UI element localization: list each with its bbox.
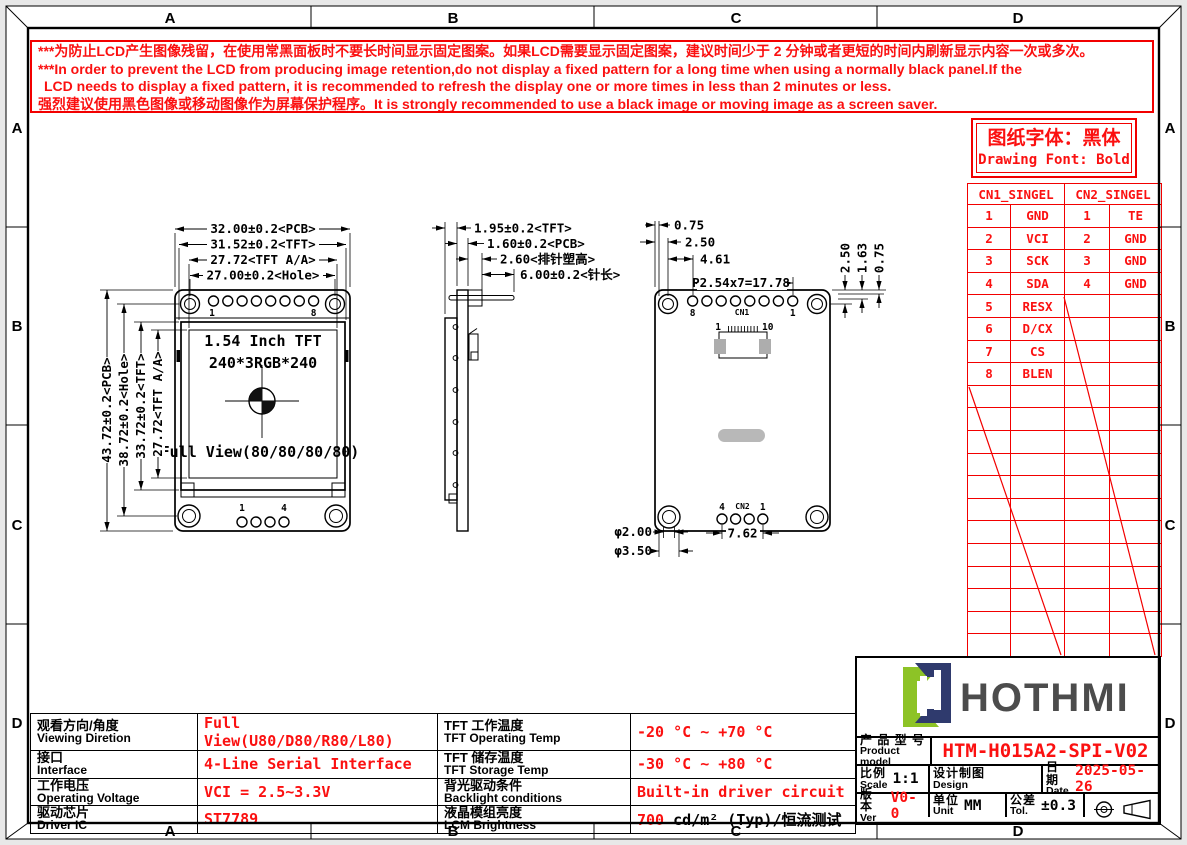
pin-name: D/CX bbox=[1011, 317, 1065, 340]
dim-hole-outer-dia: φ3.50 bbox=[614, 543, 652, 558]
unit-value: MM bbox=[964, 798, 981, 814]
spec-label-en: TFT Operating Temp bbox=[444, 732, 630, 745]
front-view: 1 8 1 4 1.54 Inch TFT 240*3RGB*240 Full … bbox=[161, 290, 360, 531]
pin-row: 3 SCK 3 GND bbox=[968, 250, 1162, 273]
spec-row: 接口 Interface 4-Line Serial Interface TFT… bbox=[31, 751, 856, 779]
dim-active-area-height: 27.72<TFT A/A> bbox=[150, 351, 165, 456]
header-pin-side bbox=[449, 296, 514, 301]
pin-number-label: 1 bbox=[209, 308, 215, 319]
cn2-pin-holes-back bbox=[717, 514, 768, 524]
pin-no: 7 bbox=[968, 340, 1011, 363]
dim-hole-inner-dia: φ2.00 bbox=[614, 524, 652, 539]
spec-label-en: LCM Brightness bbox=[444, 819, 630, 832]
margin-bottom bbox=[0, 839, 1187, 845]
font-note-cn: 图纸字体：黑体 bbox=[987, 127, 1120, 151]
ver-label-en: Ver bbox=[860, 813, 886, 824]
pin-number-label: 1 bbox=[760, 502, 766, 513]
zone-label-right: A bbox=[1165, 120, 1176, 137]
dim-right-2: 1.63 bbox=[855, 243, 870, 273]
dim-cn2-pitch: 7.62 bbox=[727, 526, 757, 541]
pin-name: VCI bbox=[1011, 227, 1065, 250]
bezel-tab bbox=[177, 350, 181, 362]
spec-label-en: Interface bbox=[37, 764, 197, 777]
mount-hole bbox=[178, 505, 200, 527]
spec-label-en: Driver IC bbox=[37, 819, 197, 832]
engineering-drawing-page: ***为防止LCD产生图像残留，在使用常黑面板时不要长时间显示固定图案。如果LC… bbox=[0, 0, 1187, 845]
product-model-row: 产 品 型 号 Product model HTM-H015A2-SPI-V02 bbox=[857, 738, 1159, 766]
zone-label-top: D bbox=[1013, 10, 1024, 27]
spec-label-cell: 工作电压 Operating Voltage bbox=[31, 778, 198, 806]
fpc-pad bbox=[714, 339, 726, 354]
date-value: 2025-05-26 bbox=[1075, 763, 1156, 795]
spec-label-cell: TFT 储存温度 TFT Storage Temp bbox=[438, 751, 631, 779]
font-note-en: Drawing Font: Bold bbox=[978, 151, 1130, 169]
dim-hole-offset: 2.50 bbox=[685, 235, 715, 250]
spec-value: Full View(U80/D80/R80/L80) bbox=[198, 714, 438, 751]
zone-label-left: A bbox=[12, 120, 23, 137]
pin-row-empty bbox=[968, 589, 1162, 612]
spec-label-en: TFT Storage Temp bbox=[444, 764, 630, 777]
pin-row: 1 GND 1 TE bbox=[968, 205, 1162, 228]
dim-pin-pitch: P2.54x7=17.78 bbox=[692, 275, 790, 290]
front-view-dimensions-top: 32.00±0.2<PCB> 31.52±0.2<TFT> 27.72<TFT … bbox=[175, 221, 350, 328]
pin-name: GND bbox=[1110, 272, 1162, 295]
spec-label-en: Backlight conditions bbox=[444, 792, 630, 805]
zone-label-right: B bbox=[1165, 318, 1176, 335]
margin-right bbox=[1181, 6, 1187, 839]
dim-tft-thickness: 1.95±0.2<TFT> bbox=[474, 221, 572, 236]
pin-row-empty bbox=[968, 566, 1162, 589]
back-view-dimensions: 0.75 2.50 4.61 P2.54x7=17.78 2.50 1.63 bbox=[614, 218, 886, 559]
ver-unit-tol-row: 版本 Ver V0-0 单位 Unit MM 公差 Tol. ±0.3 bbox=[857, 794, 1159, 817]
panel-size-label: 1.54 Inch TFT bbox=[204, 332, 321, 350]
pin-number-label: 1 bbox=[239, 503, 245, 514]
pin-no: 4 bbox=[968, 272, 1011, 295]
pin-no: 2 bbox=[1065, 227, 1110, 250]
spec-value: 700 cd/m² (Typ)/恒流测试 bbox=[631, 806, 856, 834]
warning-line: 强烈建议使用黑色图像或移动图像作为屏幕保护程序。It is strongly r… bbox=[38, 96, 1146, 114]
pin-name: SDA bbox=[1011, 272, 1065, 295]
pin-no: 4 bbox=[1065, 272, 1110, 295]
front-view-dimensions-left: 43.72±0.2<PCB> 38.72±0.2<Hole> 33.72±0.2… bbox=[99, 290, 187, 531]
warning-line: ***为防止LCD产生图像残留，在使用常黑面板时不要长时间显示固定图案。如果LC… bbox=[38, 43, 1146, 61]
pin-name: GND bbox=[1011, 205, 1065, 228]
spec-label-cell: 液晶模组亮度 LCM Brightness bbox=[438, 806, 631, 834]
fpc-connector-side bbox=[469, 334, 478, 360]
back-view: 8 CN1 1 1 10 4 CN2 bbox=[655, 290, 830, 531]
dim-pcb-thickness: 1.60±0.2<PCB> bbox=[487, 236, 585, 251]
zone-label-top: C bbox=[731, 10, 742, 27]
cn2-pin-holes-front bbox=[237, 517, 289, 527]
date-label-cn: 日期 bbox=[1046, 761, 1070, 786]
pin-no: 3 bbox=[1065, 250, 1110, 273]
pin-row-empty bbox=[968, 611, 1162, 634]
pin-no: 5 bbox=[968, 295, 1011, 318]
pin-name: GND bbox=[1110, 250, 1162, 273]
cn2-connector-label: CN2 bbox=[735, 502, 750, 511]
drawing-font-note: 图纸字体：黑体 Drawing Font: Bold bbox=[971, 118, 1137, 178]
pin-name: RESX bbox=[1011, 295, 1065, 318]
unit-cell: 单位 Unit MM bbox=[930, 794, 1007, 817]
zone-label-top: B bbox=[448, 10, 459, 27]
design-label-en: Design bbox=[933, 780, 985, 791]
zone-label-right: D bbox=[1165, 715, 1176, 732]
margin-left bbox=[0, 6, 6, 839]
spec-label-cell: 背光驱动条件 Backlight conditions bbox=[438, 778, 631, 806]
pin-row: 2 VCI 2 GND bbox=[968, 227, 1162, 250]
zone-label-right: C bbox=[1165, 517, 1176, 534]
fpc-pad bbox=[759, 339, 771, 354]
tolerance-cell: 公差 Tol. ±0.3 bbox=[1007, 794, 1085, 817]
side-view bbox=[445, 290, 514, 531]
pin-number-label: 1 bbox=[790, 308, 796, 319]
product-model-label-cell: 产 品 型 号 Product model bbox=[857, 738, 932, 764]
pin-no: 1 bbox=[968, 205, 1011, 228]
zone-label-top: A bbox=[165, 10, 176, 27]
image-retention-warning: ***为防止LCD产生图像残留，在使用常黑面板时不要长时间显示固定图案。如果LC… bbox=[30, 40, 1154, 113]
pin-table-header-row: CN1_SINGEL CN2_SINGEL bbox=[968, 184, 1162, 205]
spec-value-red: 700 bbox=[637, 811, 664, 829]
product-label-en: Product model bbox=[860, 746, 927, 768]
pin-row-empty bbox=[968, 408, 1162, 431]
scale-value: 1:1 bbox=[892, 771, 918, 787]
pin-row-empty bbox=[968, 521, 1162, 544]
spec-label-en: Operating Voltage bbox=[37, 792, 197, 805]
spec-label-cn: 工作电压 bbox=[37, 779, 197, 792]
dim-header-plastic-height: 2.60<排针塑高> bbox=[500, 252, 595, 267]
date-cell: 日期 Date 2025-05-26 bbox=[1043, 766, 1159, 792]
pin-row-empty bbox=[968, 498, 1162, 521]
spec-label-cell: 观看方向/角度 Viewing Diretion bbox=[31, 714, 198, 751]
spec-row: 观看方向/角度 Viewing Diretion Full View(U80/D… bbox=[31, 714, 856, 751]
pin-row: 5 RESX bbox=[968, 295, 1162, 318]
warning-line: ***In order to prevent the LCD from prod… bbox=[38, 61, 1146, 79]
spec-label-cn: 背光驱动条件 bbox=[444, 779, 630, 792]
zone-label-left: C bbox=[12, 517, 23, 534]
mount-hole bbox=[326, 295, 345, 314]
spec-label-cell: 接口 Interface bbox=[31, 751, 198, 779]
zone-label-left: B bbox=[12, 318, 23, 335]
mount-hole bbox=[806, 506, 828, 528]
cn1-connector-label: CN1 bbox=[735, 308, 750, 317]
dim-hole-width: 27.00±0.2<Hole> bbox=[207, 268, 320, 283]
tol-value: ±0.3 bbox=[1041, 798, 1076, 814]
pin-row-empty bbox=[968, 634, 1162, 657]
cn1-pin-holes-front bbox=[209, 296, 319, 306]
pin-row: 7 CS bbox=[968, 340, 1162, 363]
pin-row: 8 BLEN bbox=[968, 363, 1162, 386]
pin-no: 6 bbox=[968, 317, 1011, 340]
spec-label-en: Viewing Diretion bbox=[37, 732, 197, 745]
fpc-pin-label: 10 bbox=[762, 322, 774, 333]
zone-label-left: D bbox=[12, 715, 23, 732]
spec-table: 观看方向/角度 Viewing Diretion Full View(U80/D… bbox=[30, 713, 856, 834]
pin-row: 4 SDA 4 GND bbox=[968, 272, 1162, 295]
pin-row-empty bbox=[968, 543, 1162, 566]
mount-hole bbox=[181, 295, 200, 314]
cn1-pin-holes-back bbox=[688, 296, 798, 306]
spec-value: VCI = 2.5~3.3V bbox=[198, 778, 438, 806]
pin-row-empty bbox=[968, 453, 1162, 476]
dim-tft-height: 33.72±0.2<TFT> bbox=[133, 353, 148, 458]
logo-cell bbox=[857, 658, 1159, 738]
spec-value: ST7789 bbox=[198, 806, 438, 834]
pin-no: 3 bbox=[968, 250, 1011, 273]
mount-hole bbox=[658, 506, 680, 528]
design-cell: 设计制图 Design bbox=[930, 766, 1043, 792]
pin-name: TE bbox=[1110, 205, 1162, 228]
pin-name: GND bbox=[1110, 227, 1162, 250]
connector-pin-table: CN1_SINGEL CN2_SINGEL 1 GND 1 TE 2 VCI 2… bbox=[967, 183, 1162, 657]
pin-number-label: 4 bbox=[719, 502, 725, 513]
fpc-connector bbox=[714, 326, 771, 358]
spec-row: 驱动芯片 Driver IC ST7789 液晶模组亮度 LCM Brightn… bbox=[31, 806, 856, 834]
product-model-value: HTM-H015A2-SPI-V02 bbox=[935, 740, 1156, 762]
pin-name: BLEN bbox=[1011, 363, 1065, 386]
dim-pcb-width: 32.00±0.2<PCB> bbox=[210, 221, 315, 236]
cn1-header: CN1_SINGEL bbox=[968, 184, 1065, 205]
fpc-pin-label: 1 bbox=[715, 322, 721, 333]
dim-active-area-width: 27.72<TFT A/A> bbox=[210, 252, 315, 267]
pin-row-empty bbox=[968, 385, 1162, 408]
mount-hole bbox=[325, 505, 347, 527]
pin-no: 8 bbox=[968, 363, 1011, 386]
tol-label-en: Tol. bbox=[1010, 806, 1036, 817]
pin-row-empty bbox=[968, 476, 1162, 499]
spec-value: -30 °C ~ +80 °C bbox=[631, 751, 856, 779]
pin-name: SCK bbox=[1011, 250, 1065, 273]
pin-row-empty bbox=[968, 430, 1162, 453]
projection-symbol-cell bbox=[1085, 794, 1159, 817]
cn2-header: CN2_SINGEL bbox=[1065, 184, 1162, 205]
spec-label-cell: TFT 工作温度 TFT Operating Temp bbox=[438, 714, 631, 751]
spec-label-cell: 驱动芯片 Driver IC bbox=[31, 806, 198, 834]
pin-row: 6 D/CX bbox=[968, 317, 1162, 340]
pin-number-label: 4 bbox=[281, 503, 287, 514]
dim-edge-offset: 0.75 bbox=[674, 218, 704, 233]
dim-pin-length: 6.00±0.2<针长> bbox=[520, 267, 620, 282]
ver-value: V0-0 bbox=[891, 790, 925, 822]
dim-hole-height: 38.72±0.2<Hole> bbox=[116, 354, 131, 467]
pin-number-label: 8 bbox=[311, 308, 317, 319]
center-target-icon bbox=[225, 365, 299, 438]
dim-pin-offset: 4.61 bbox=[700, 252, 730, 267]
pin-no: 2 bbox=[968, 227, 1011, 250]
drawing-font-note-inner: 图纸字体：黑体 Drawing Font: Bold bbox=[976, 123, 1132, 173]
warning-line: LCD needs to display a fixed pattern, it… bbox=[38, 78, 1146, 96]
version-cell: 版本 Ver V0-0 bbox=[857, 794, 930, 817]
margin-top bbox=[0, 0, 1187, 6]
spec-value: Built-in driver circuit bbox=[631, 778, 856, 806]
pin-number-label: 8 bbox=[690, 308, 696, 319]
side-view-dimensions: 1.95±0.2<TFT> 1.60±0.2<PCB> 2.60<排针塑高> 6… bbox=[432, 221, 620, 315]
ver-label-cn: 版本 bbox=[860, 788, 886, 813]
design-label-cn: 设计制图 bbox=[933, 767, 985, 780]
pin-no: 1 bbox=[1065, 205, 1110, 228]
dim-right-3: 0.75 bbox=[872, 243, 887, 273]
spec-row: 工作电压 Operating Voltage VCI = 2.5~3.3V 背光… bbox=[31, 778, 856, 806]
title-block: 产 品 型 号 Product model HTM-H015A2-SPI-V02… bbox=[855, 656, 1161, 825]
scale-label-cn: 比例 bbox=[860, 767, 887, 780]
mount-hole bbox=[659, 295, 678, 314]
dim-tft-width: 31.52±0.2<TFT> bbox=[210, 237, 315, 252]
unit-label-en: Unit bbox=[933, 806, 959, 817]
dim-right-1: 2.50 bbox=[838, 243, 853, 273]
dim-pcb-height: 43.72±0.2<PCB> bbox=[99, 357, 114, 462]
spec-value: -20 °C ~ +70 °C bbox=[631, 714, 856, 751]
zone-label-bottom: D bbox=[1013, 823, 1024, 840]
pin-name: CS bbox=[1011, 340, 1065, 363]
mount-hole bbox=[808, 295, 827, 314]
spec-value: 4-Line Serial Interface bbox=[198, 751, 438, 779]
ic-strip bbox=[718, 429, 765, 442]
panel-fullview-label: Full View(80/80/80/80) bbox=[161, 443, 360, 461]
spec-value-black: cd/m² (Typ)/恒流测试 bbox=[664, 811, 841, 829]
bezel-tab bbox=[345, 350, 349, 362]
panel-resolution-label: 240*3RGB*240 bbox=[209, 354, 317, 372]
